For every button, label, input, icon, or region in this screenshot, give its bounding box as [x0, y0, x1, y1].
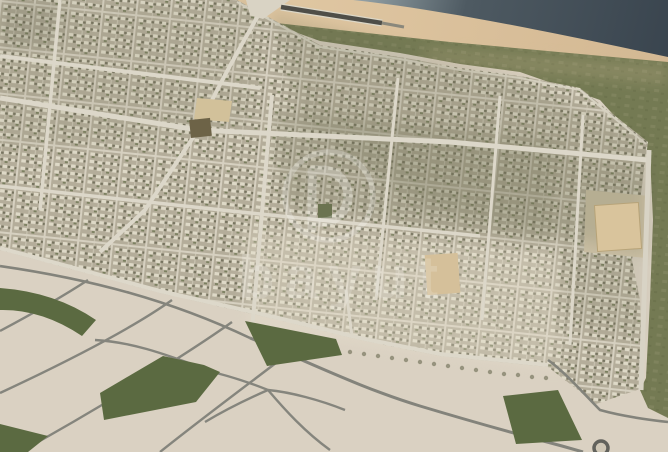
svg-text:bayut: bayut	[238, 244, 448, 311]
